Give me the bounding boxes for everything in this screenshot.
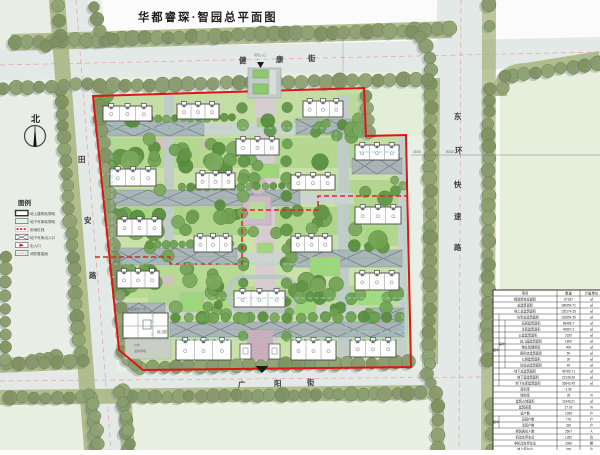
svg-text:计量单位: 计量单位 (585, 290, 599, 295)
svg-text:30: 30 (567, 357, 571, 361)
svg-text:出入口: 出入口 (30, 243, 41, 248)
svg-text:其中: 其中 (493, 419, 499, 424)
svg-text:高层建筑面积: 高层建筑面积 (522, 320, 542, 325)
svg-text:健: 健 (239, 56, 247, 65)
svg-text:400: 400 (566, 345, 571, 349)
svg-text:地上总建筑面积: 地上总建筑面积 (514, 308, 537, 313)
svg-text:3507: 3507 (565, 429, 572, 433)
svg-text:高层户数: 高层户数 (522, 416, 535, 421)
svg-text:2320: 2320 (565, 333, 572, 337)
svg-text:67187: 67187 (564, 297, 573, 301)
svg-text:位: 位 (590, 446, 593, 450)
svg-text:数量: 数量 (565, 290, 572, 295)
svg-text:规划用地总面积: 规划用地总面积 (514, 296, 537, 301)
svg-text:320: 320 (566, 423, 571, 427)
svg-text:容积率: 容积率 (520, 386, 529, 391)
svg-text:阳: 阳 (274, 379, 281, 388)
svg-text:活动场地: 活动场地 (134, 348, 146, 353)
svg-text:幼儿园建筑面积: 幼儿园建筑面积 (520, 338, 543, 343)
svg-text:北: 北 (31, 113, 40, 124)
svg-text:项目入口: 项目入口 (254, 53, 266, 57)
svg-text:田: 田 (78, 155, 85, 164)
svg-text:地上停车位: 地上停车位 (517, 446, 533, 450)
svg-text:环: 环 (455, 146, 463, 155)
svg-text:19138.26: 19138.26 (562, 375, 575, 379)
svg-text:项目: 项目 (522, 291, 529, 295)
svg-text:华都睿琛·智园总平面图: 华都睿琛·智园总平面图 (138, 10, 278, 24)
svg-text:公厕建筑面积: 公厕建筑面积 (522, 356, 542, 361)
svg-text:776: 776 (566, 417, 571, 421)
svg-text:其中: 其中 (493, 347, 499, 352)
svg-text:15.00: 15.00 (413, 150, 421, 154)
svg-text:地下车库出入口: 地下车库出入口 (30, 235, 56, 240)
svg-text:速: 速 (454, 212, 462, 221)
svg-text:便民店建筑面积: 便民店建筑面积 (520, 350, 543, 355)
svg-text:其中: 其中 (499, 341, 505, 346)
svg-text:快: 快 (454, 180, 462, 189)
svg-text:图例: 图例 (18, 198, 32, 207)
svg-text:26642.45: 26642.45 (562, 381, 575, 385)
svg-text:公建建筑面积: 公建建筑面积 (519, 332, 539, 337)
svg-text:2366: 2366 (565, 441, 572, 445)
svg-text:洋房户数: 洋房户数 (522, 422, 535, 427)
svg-text:1352: 1352 (565, 435, 572, 439)
svg-text:2.06: 2.06 (565, 387, 571, 391)
svg-text:街: 街 (307, 54, 316, 63)
svg-text:17.02: 17.02 (565, 405, 573, 409)
svg-text:132854.35: 132854.35 (561, 315, 576, 319)
svg-text:180954.71: 180954.71 (561, 303, 576, 307)
svg-text:地下车库建筑面积: 地下车库建筑面积 (515, 380, 541, 385)
svg-text:89986.7: 89986.7 (563, 321, 575, 325)
svg-text:总建筑面积: 总建筑面积 (517, 302, 534, 307)
svg-text:1096: 1096 (565, 411, 572, 415)
svg-text:50.00: 50.00 (446, 150, 454, 154)
svg-text:户: 户 (590, 416, 593, 421)
svg-text:物业管理用房: 物业管理用房 (522, 344, 541, 349)
svg-text:路: 路 (454, 243, 462, 252)
svg-text:1800: 1800 (565, 339, 572, 343)
svg-text:地上建筑轮廓线: 地上建筑轮廓线 (30, 211, 56, 216)
svg-text:135174.35: 135174.35 (561, 309, 576, 313)
svg-text:位: 位 (590, 434, 593, 439)
svg-text:安: 安 (84, 216, 92, 225)
svg-text:住宅总建筑面积: 住宅总建筑面积 (517, 314, 540, 319)
svg-text:绿地率: 绿地率 (520, 392, 529, 397)
svg-text:总户数: 总户数 (520, 410, 530, 415)
svg-text:地下室建筑面积: 地下室建筑面积 (517, 374, 540, 379)
svg-text:建筑密度: 建筑密度 (519, 404, 532, 409)
svg-text:东: 东 (454, 112, 462, 121)
svg-text:社区服务广场: 社区服务广场 (128, 306, 146, 311)
svg-text:机动车停车位: 机动车停车位 (516, 434, 535, 439)
svg-text:建筑占地面积: 建筑占地面积 (516, 398, 536, 403)
svg-text:35: 35 (567, 393, 571, 397)
svg-text:42867.3: 42867.3 (563, 327, 575, 331)
svg-text:40: 40 (567, 363, 571, 367)
svg-text:地下车库轮廓线: 地下车库轮廓线 (30, 219, 56, 224)
svg-text:街: 街 (306, 378, 315, 387)
svg-text:消防登高面: 消防登高面 (30, 251, 48, 256)
svg-text:路: 路 (89, 271, 97, 280)
svg-text:广: 广 (238, 380, 246, 389)
svg-text:户: 户 (590, 410, 593, 415)
svg-text:地下总建筑面积: 地下总建筑面积 (514, 368, 537, 373)
svg-text:%: % (590, 393, 593, 397)
svg-text:户: 户 (590, 422, 593, 427)
svg-text:%: % (590, 405, 593, 409)
svg-text:洋房建筑面积: 洋房建筑面积 (522, 326, 542, 331)
svg-text:户外: 户外 (134, 342, 140, 347)
svg-text:11946.21: 11946.21 (562, 399, 575, 403)
svg-text:用地红线: 用地红线 (30, 227, 45, 232)
svg-text:非机动车停车位: 非机动车停车位 (514, 440, 536, 445)
svg-text:45780.71: 45780.71 (562, 369, 575, 373)
svg-text:辆: 辆 (590, 440, 593, 445)
svg-text:垃圾站建筑面积: 垃圾站建筑面积 (520, 362, 543, 367)
svg-text:50: 50 (567, 351, 571, 355)
svg-text:幼儿园: 幼儿园 (157, 329, 167, 334)
svg-text:规划居住人数: 规划居住人数 (516, 428, 536, 433)
svg-text:康: 康 (276, 55, 284, 64)
